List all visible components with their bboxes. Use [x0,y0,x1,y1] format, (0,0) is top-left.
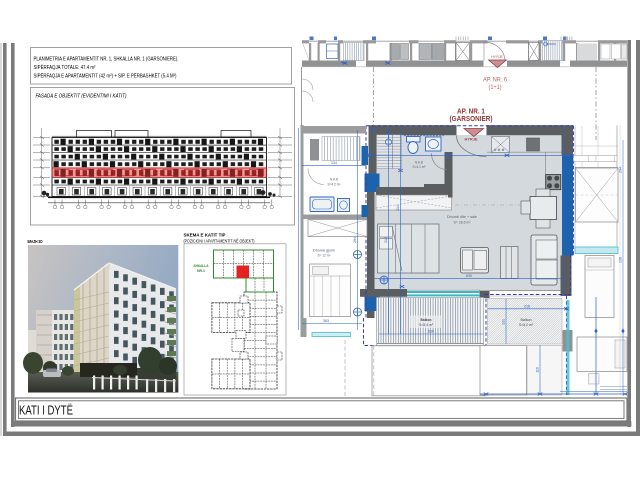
svg-text:314: 314 [384,237,388,243]
svg-text:(GARSONIER): (GARSONIER) [450,116,493,123]
svg-text:HYRJE: HYRJE [491,55,504,59]
svg-text:Balkon: Balkon [521,318,532,322]
svg-text:SIPËRFAQJA E APARTAMENTIT (42: SIPËRFAQJA E APARTAMENTIT (42 m²) + SIP.… [34,73,177,80]
svg-text:294: 294 [619,167,623,173]
svg-text:Dhomë gjumi: Dhomë gjumi [313,249,335,253]
svg-text:KATI I DYTË: KATI I DYTË [19,404,73,418]
svg-text:N.H.B: N.H.B [415,161,423,165]
svg-text:SHKALLA: SHKALLA [194,264,210,268]
svg-text:Balkon: Balkon [421,318,433,322]
svg-text:116: 116 [536,367,540,373]
svg-text:(POZICIONI I APARTAMENTIT NË O: (POZICIONI I APARTAMENTIT NË OBJEKT) [184,238,256,243]
svg-text:630: 630 [428,330,434,334]
svg-text:AP. NR. 6: AP. NR. 6 [483,77,507,84]
svg-text:294: 294 [353,237,357,243]
svg-text:130: 130 [619,257,623,263]
svg-text:N.H.B: N.H.B [330,178,339,182]
svg-text:131: 131 [502,319,506,325]
svg-text:S=5.4 m²: S=5.4 m² [419,323,434,327]
svg-text:Dhomë dite + sale: Dhomë dite + sale [447,215,477,219]
svg-text:NR.1: NR.1 [197,269,205,273]
svg-text:S=4.1 m²: S=4.1 m² [413,165,427,169]
svg-text:IMAZH 3D: IMAZH 3D [28,239,43,244]
svg-text:314: 314 [396,205,400,211]
svg-text:SKEMA E KATIT TIP: SKEMA E KATIT TIP [184,233,226,238]
svg-text:HYRJE: HYRJE [465,137,479,141]
svg-text:PLANIMETRIA E APARTAMENTIT NR.: PLANIMETRIA E APARTAMENTIT NR. 1, SHKALL… [34,57,179,63]
svg-text:S= 12 m²: S= 12 m² [318,254,332,258]
svg-text:SIPËRFAQJA TOTALE: 47.4 m²: SIPËRFAQJA TOTALE: 47.4 m² [34,64,96,71]
svg-text:S= 28.6 m²: S= 28.6 m² [454,221,472,225]
svg-text:363: 363 [323,319,329,323]
svg-text:630: 630 [466,274,472,278]
svg-text:134: 134 [331,161,337,165]
svg-text:(1+1): (1+1) [489,84,502,91]
svg-text:216: 216 [524,304,530,308]
svg-text:FASADA E OBJEKTIT (EVIDENTIMI: FASADA E OBJEKTIT (EVIDENTIMI I KATIT) [36,94,127,100]
svg-text:S=4.2 m²: S=4.2 m² [328,183,342,187]
svg-text:S=5.2 m²: S=5.2 m² [519,323,534,327]
svg-text:AP. NR. 1: AP. NR. 1 [457,109,485,116]
